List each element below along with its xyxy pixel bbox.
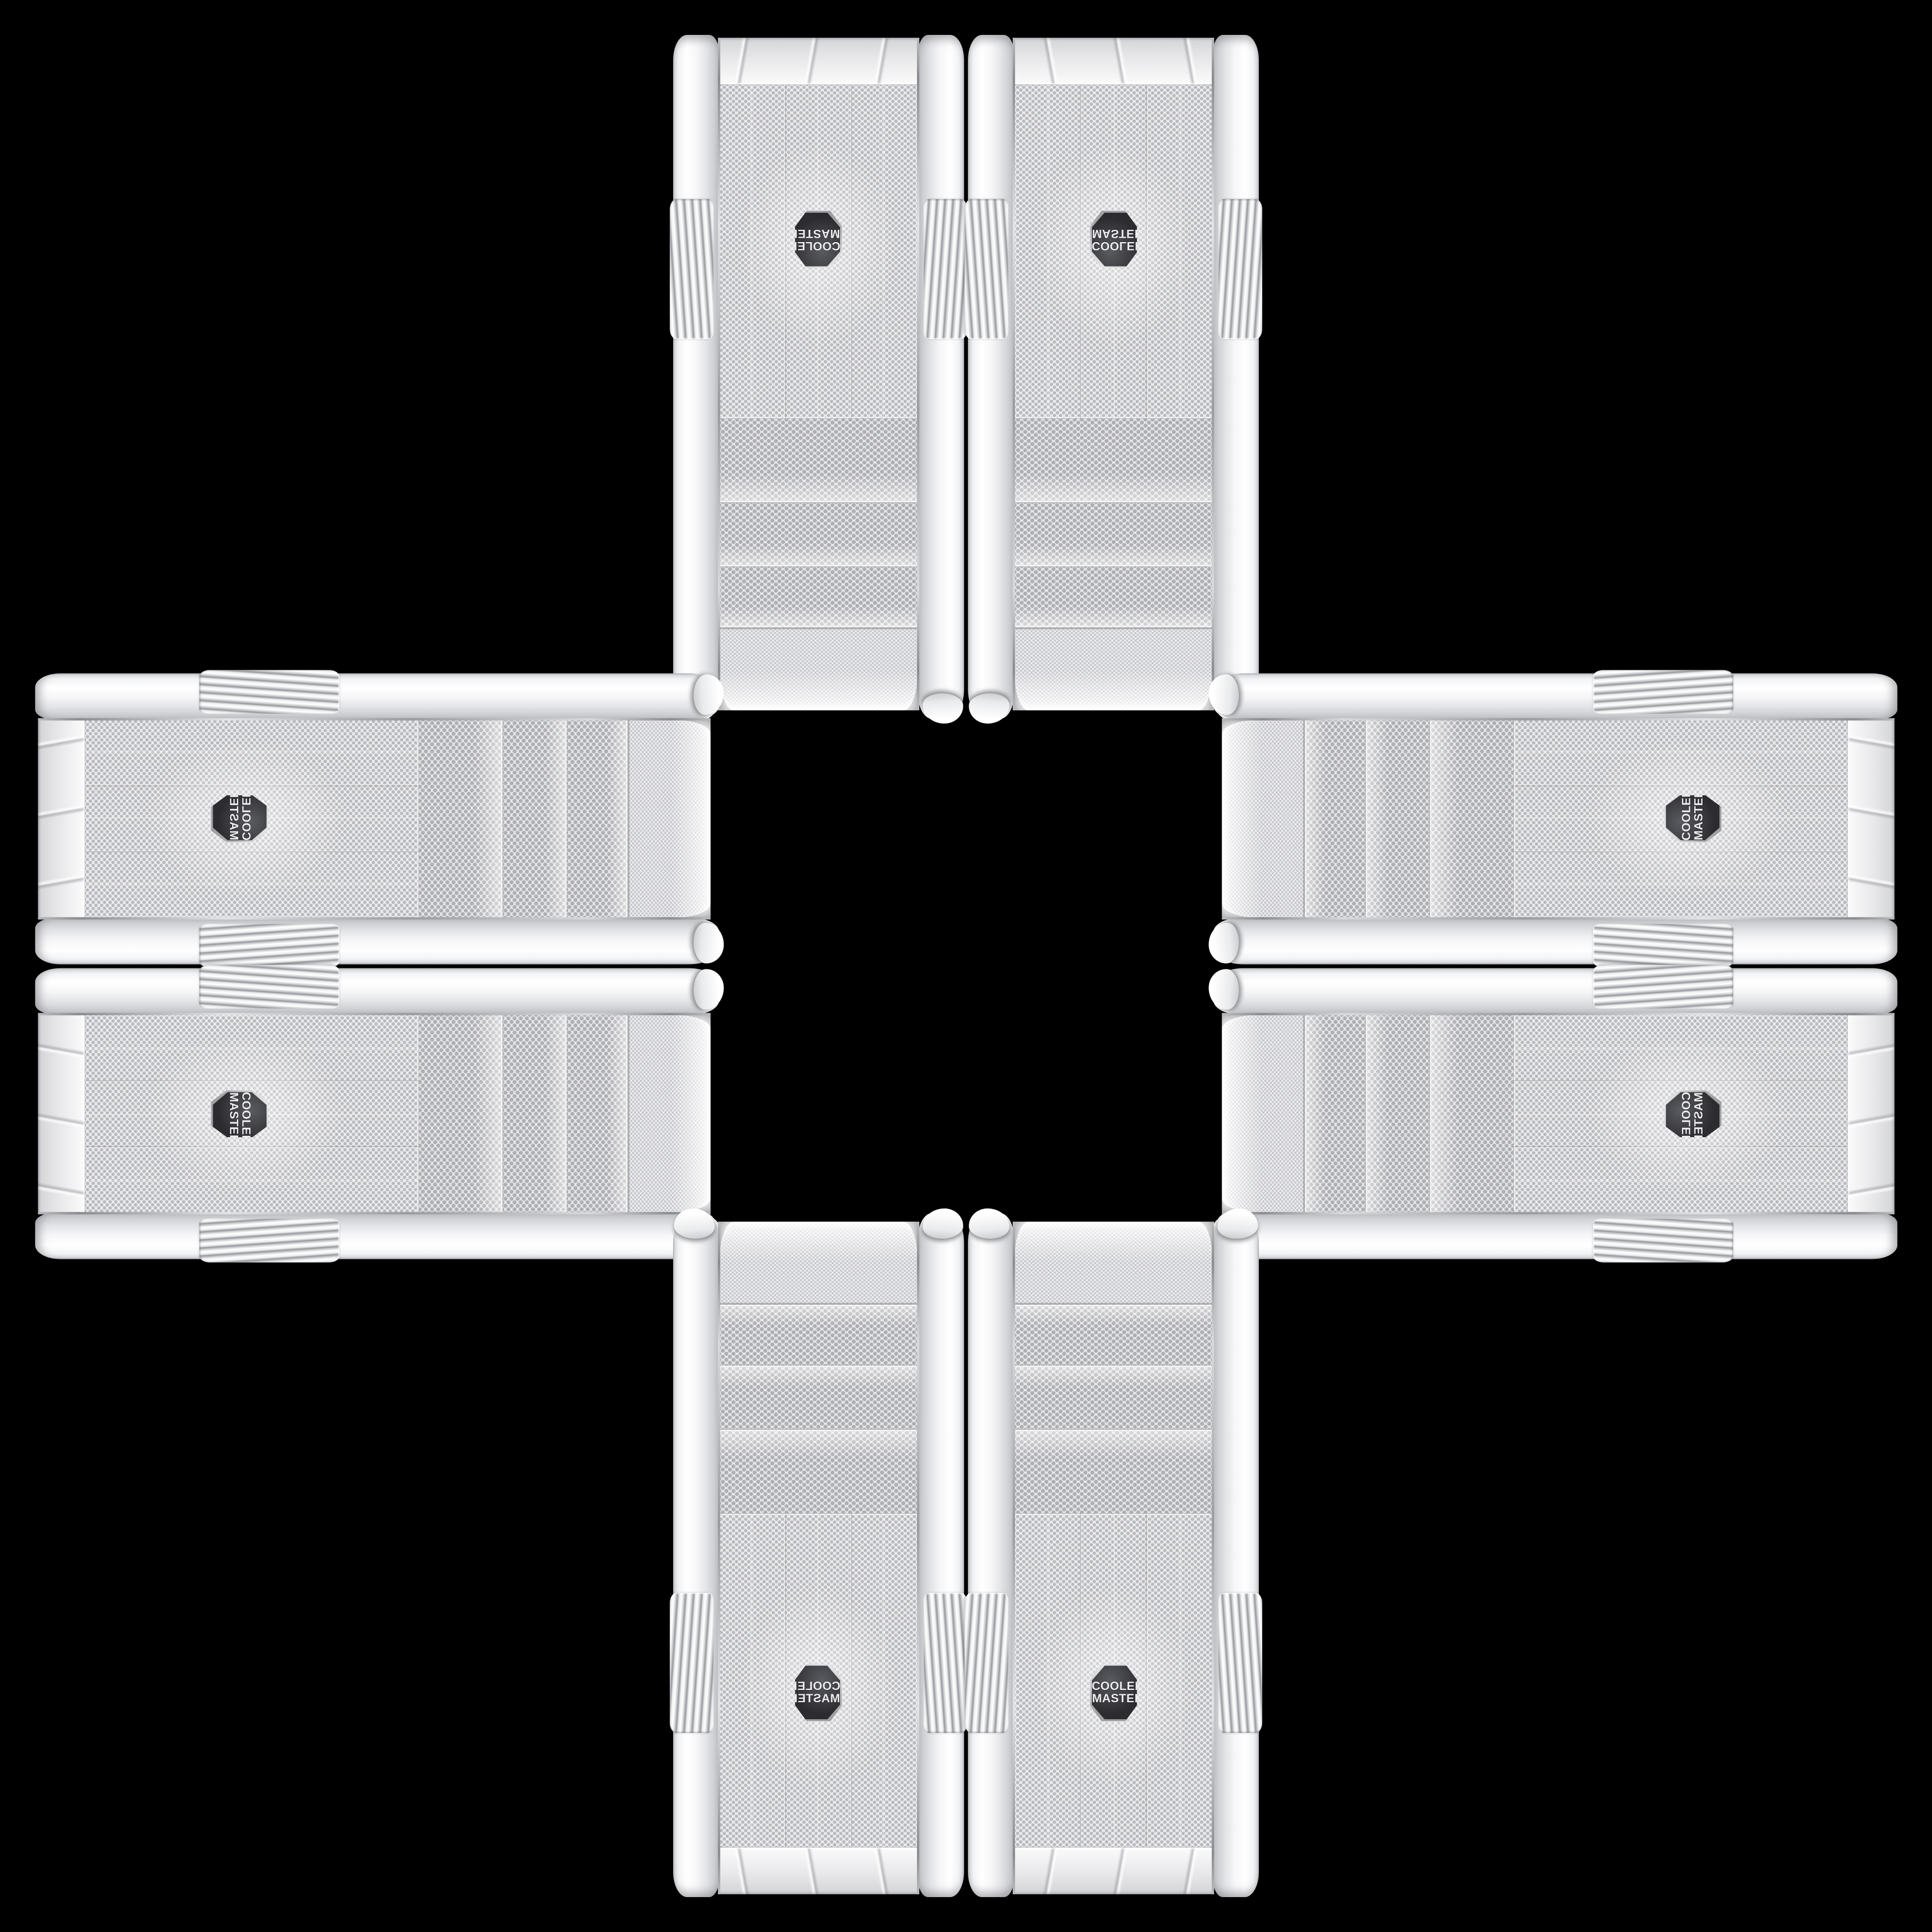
drive-bay-cover-3 <box>419 720 503 917</box>
mesh-top-cap <box>1222 1015 1304 1212</box>
badge-text-line2: MASTER <box>1092 227 1143 240</box>
drive-bay-cover-2 <box>1365 720 1429 917</box>
rail-grip-ribs <box>1218 1593 1262 1733</box>
rail-grip-ribs <box>924 199 967 339</box>
rail-grip-ribs <box>670 199 714 339</box>
pc-case: COOLER MASTER <box>37 968 712 1258</box>
badge-text-line1: COOLER <box>789 240 841 252</box>
badge-text-line1: COOLER <box>240 789 252 841</box>
drive-bay-cover-1 <box>720 1304 917 1365</box>
drive-bay-cover-2 <box>720 1365 917 1429</box>
mesh-top-cap <box>628 1015 710 1212</box>
drive-bay-cover-2 <box>1015 1365 1212 1429</box>
rail-grip-ribs <box>670 1593 714 1733</box>
bottom-bezel <box>720 38 917 85</box>
drive-bay-cover-2 <box>1015 503 1212 567</box>
rail-grip-ribs <box>1593 670 1733 714</box>
case-side-rail-right <box>1213 1213 1259 1897</box>
badge-text-line1: COOLER <box>1680 789 1692 841</box>
case-bottom-right: COOLER MASTER <box>968 1220 1258 1895</box>
pc-case: COOLER MASTER <box>37 674 712 964</box>
pc-case: COOLER MASTER <box>1220 674 1895 964</box>
badge-text-line1: COOLER <box>240 1092 252 1144</box>
case-side-rail-left <box>968 1213 1014 1897</box>
drive-bay-cover-1 <box>1304 720 1365 917</box>
mesh-top-cap <box>628 720 710 917</box>
drive-bay-cover-3 <box>419 1015 503 1212</box>
front-bezel <box>720 38 917 710</box>
badge-text-line1: COOLER <box>789 1680 841 1692</box>
rail-grip-ribs <box>1593 924 1733 967</box>
drive-bay-cover-2 <box>503 720 567 917</box>
mesh-top-cap <box>720 628 917 710</box>
bottom-bezel <box>720 1847 917 1894</box>
cooler-master-badge: COOLER MASTER <box>1090 1664 1137 1721</box>
drive-bay-cover-3 <box>1015 1429 1212 1514</box>
drive-bay-cover-1 <box>1015 1304 1212 1365</box>
pc-case: COOLER MASTER <box>968 37 1258 712</box>
case-side-rail-right <box>673 1213 719 1897</box>
rail-grip-ribs <box>924 1593 967 1733</box>
front-bezel <box>1015 1222 1212 1894</box>
pc-case: COOLER MASTER <box>674 37 964 712</box>
case-left-bottom: COOLER MASTER <box>37 968 712 1258</box>
drive-bay-cover-1 <box>1015 567 1212 628</box>
badge-text-line1: COOLER <box>1092 240 1144 252</box>
case-side-rail-left <box>918 35 964 719</box>
case-side-rail-left <box>1213 918 1897 964</box>
bottom-bezel <box>1015 38 1212 85</box>
drive-bay-cover-3 <box>1429 1015 1514 1212</box>
case-collage: COOLER MASTER <box>0 0 1932 1932</box>
mesh-top-cap <box>720 1222 917 1304</box>
front-bezel <box>38 720 710 917</box>
cooler-master-badge: COOLER MASTER <box>1090 211 1137 268</box>
badge-text-line1: COOLER <box>1092 1680 1144 1692</box>
drive-bay-cover-3 <box>720 419 917 503</box>
badge-text-line2: MASTER <box>1692 1092 1705 1143</box>
case-side-rail-right <box>1213 673 1897 719</box>
badge-text-line1: COOLER <box>1680 1092 1692 1144</box>
case-bottom-left: COOLER MASTER <box>674 1220 964 1895</box>
bottom-bezel <box>1015 1847 1212 1894</box>
drive-bay-cover-3 <box>1015 419 1212 503</box>
case-right-top: COOLER MASTER <box>1220 674 1895 964</box>
badge-text-line2: MASTER <box>789 227 840 240</box>
badge-text-line2: MASTER <box>1692 789 1705 840</box>
drive-bay-cover-2 <box>503 1015 567 1212</box>
rail-grip-ribs <box>1218 199 1262 339</box>
bottom-bezel <box>1847 720 1894 917</box>
rail-grip-ribs <box>199 924 339 967</box>
front-bezel <box>1222 1015 1894 1212</box>
badge-text-line2: MASTER <box>227 789 240 840</box>
badge-text-line2: MASTER <box>1092 1692 1143 1705</box>
front-bezel <box>1222 720 1894 917</box>
cooler-master-badge: COOLER MASTER <box>211 1090 268 1137</box>
case-right-bottom: COOLER MASTER <box>1220 968 1895 1258</box>
drive-bay-cover-2 <box>1365 1015 1429 1212</box>
bottom-bezel <box>38 720 85 917</box>
front-bezel <box>38 1015 710 1212</box>
pc-case: COOLER MASTER <box>1220 968 1895 1258</box>
bottom-bezel <box>1847 1015 1894 1212</box>
case-side-rail-right <box>35 673 719 719</box>
case-side-rail-right <box>35 1213 719 1259</box>
rail-grip-ribs <box>1593 965 1733 1008</box>
rail-grip-ribs <box>965 1593 1008 1733</box>
bottom-bezel <box>38 1015 85 1212</box>
rail-grip-ribs <box>199 1218 339 1262</box>
rail-grip-ribs <box>965 199 1008 339</box>
cooler-master-badge: COOLER MASTER <box>795 211 842 268</box>
case-side-rail-left <box>918 1213 964 1897</box>
case-side-rail-left <box>35 918 719 964</box>
front-bezel <box>720 1222 917 1894</box>
badge-text-line2: MASTER <box>789 1692 840 1705</box>
cooler-master-badge: COOLER MASTER <box>1664 1090 1721 1137</box>
case-left-top: COOLER MASTER <box>37 674 712 964</box>
drive-bay-cover-1 <box>567 720 628 917</box>
case-side-rail-right <box>1213 35 1259 719</box>
drive-bay-cover-1 <box>1304 1015 1365 1212</box>
rail-grip-ribs <box>199 670 339 714</box>
cooler-master-badge: COOLER MASTER <box>795 1664 842 1721</box>
case-top-right: COOLER MASTER <box>968 37 1258 712</box>
case-top-left: COOLER MASTER <box>674 37 964 712</box>
rail-grip-ribs <box>1593 1218 1733 1262</box>
cooler-master-badge: COOLER MASTER <box>1664 795 1721 842</box>
case-side-rail-right <box>673 35 719 719</box>
case-side-rail-left <box>968 35 1014 719</box>
case-side-rail-right <box>1213 1213 1897 1259</box>
mesh-top-cap <box>1222 720 1304 917</box>
case-side-rail-left <box>35 968 719 1014</box>
cooler-master-badge: COOLER MASTER <box>211 795 268 842</box>
drive-bay-cover-1 <box>567 1015 628 1212</box>
mesh-top-cap <box>1015 628 1212 710</box>
pc-case: COOLER MASTER <box>968 1220 1258 1895</box>
drive-bay-cover-3 <box>720 1429 917 1514</box>
drive-bay-cover-3 <box>1429 720 1514 917</box>
drive-bay-cover-1 <box>720 567 917 628</box>
drive-bay-cover-2 <box>720 503 917 567</box>
case-side-rail-left <box>1213 968 1897 1014</box>
mesh-top-cap <box>1015 1222 1212 1304</box>
badge-text-line2: MASTER <box>227 1092 240 1143</box>
rail-grip-ribs <box>199 965 339 1008</box>
pc-case: COOLER MASTER <box>674 1220 964 1895</box>
front-bezel <box>1015 38 1212 710</box>
